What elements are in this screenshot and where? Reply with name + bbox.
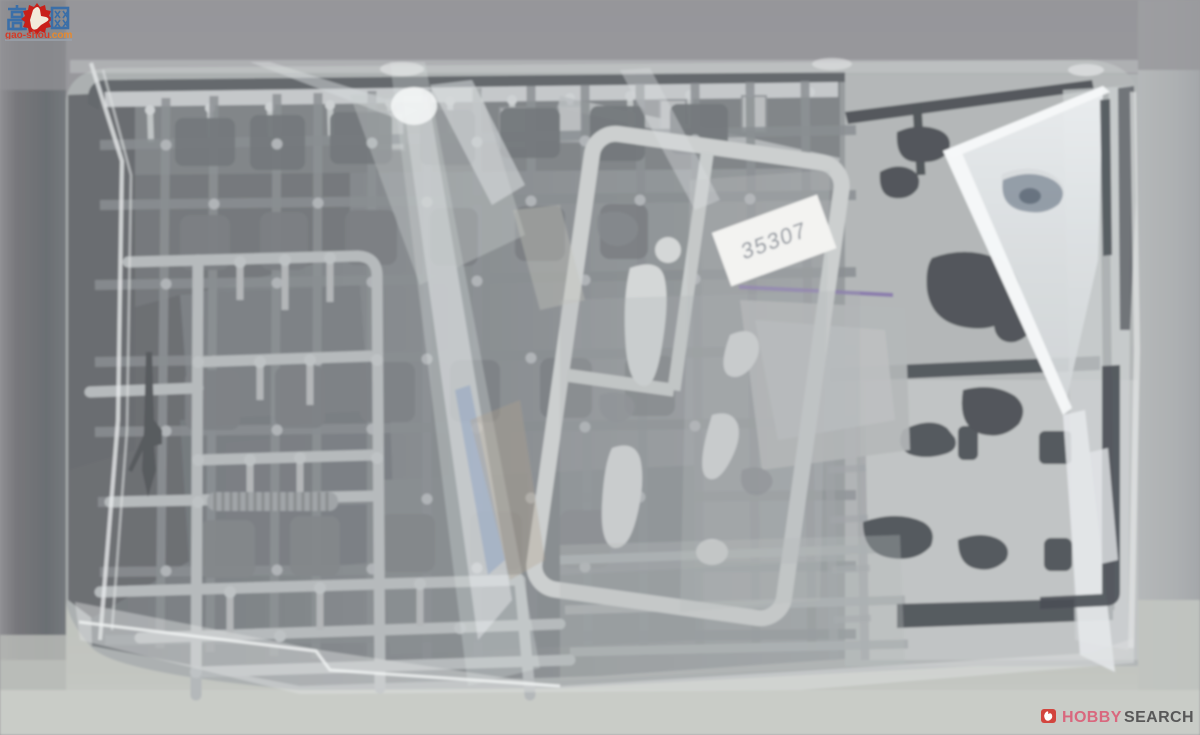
svg-text:HOBBY: HOBBY	[1062, 709, 1122, 726]
svg-text:SEARCH: SEARCH	[1124, 709, 1194, 726]
